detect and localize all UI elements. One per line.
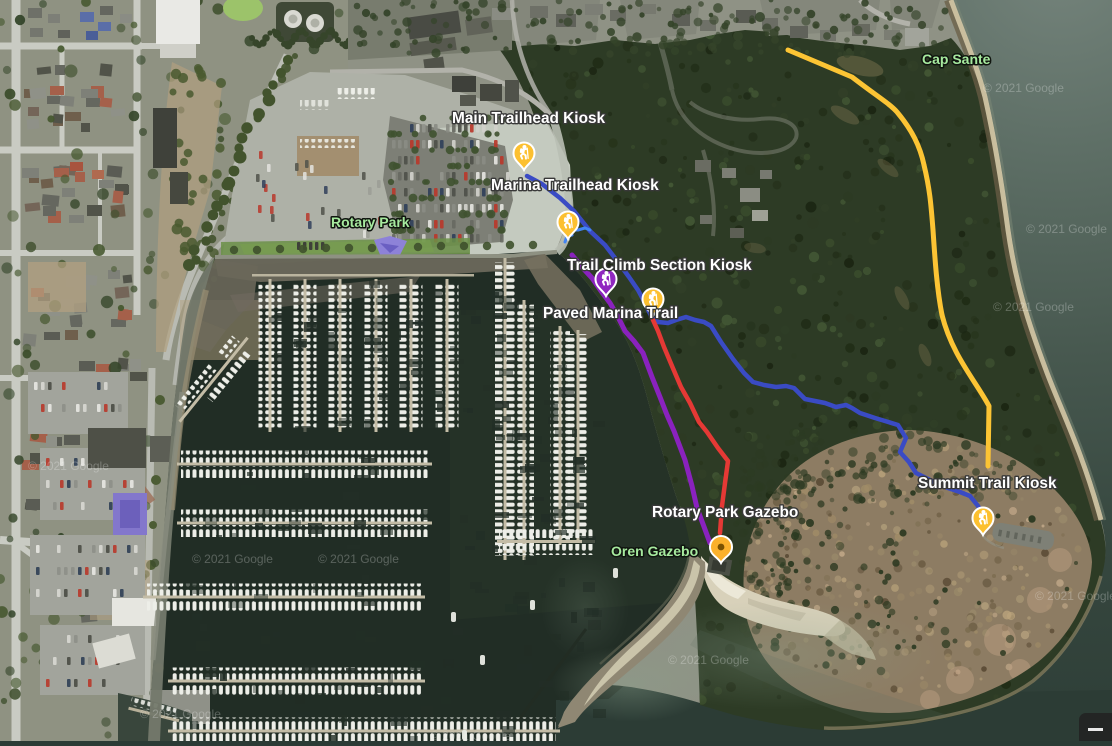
svg-text:© 2021 Google: © 2021 Google: [192, 552, 273, 566]
svg-text:Oren Gazebo: Oren Gazebo: [611, 543, 698, 559]
svg-text:© 2021 Google: © 2021 Google: [1035, 589, 1112, 603]
svg-text:© 2021 Google: © 2021 Google: [140, 707, 221, 721]
svg-text:Marina Trailhead Kiosk: Marina Trailhead Kiosk: [491, 177, 659, 194]
svg-text:© 2021 Google: © 2021 Google: [668, 653, 749, 667]
svg-text:© 2021 Google: © 2021 Google: [983, 81, 1064, 95]
svg-text:Rotary Park: Rotary Park: [331, 214, 410, 230]
svg-text:Paved Marina Trail: Paved Marina Trail: [543, 305, 678, 322]
svg-text:Main Trailhead Kiosk: Main Trailhead Kiosk: [452, 110, 606, 127]
svg-text:Cap Sante: Cap Sante: [922, 51, 991, 67]
svg-text:Rotary Park Gazebo: Rotary Park Gazebo: [652, 504, 798, 521]
svg-text:Summit Trail Kiosk: Summit Trail Kiosk: [918, 475, 1057, 492]
svg-text:© 2021 Google: © 2021 Google: [28, 459, 109, 473]
svg-text:© 2021 Google: © 2021 Google: [1026, 222, 1107, 236]
svg-text:© 2021 Google: © 2021 Google: [318, 552, 399, 566]
svg-text:Trail Climb Section Kiosk: Trail Climb Section Kiosk: [567, 257, 752, 274]
svg-text:© 2021 Google: © 2021 Google: [430, 729, 511, 741]
svg-text:© 2021 Google: © 2021 Google: [993, 300, 1074, 314]
